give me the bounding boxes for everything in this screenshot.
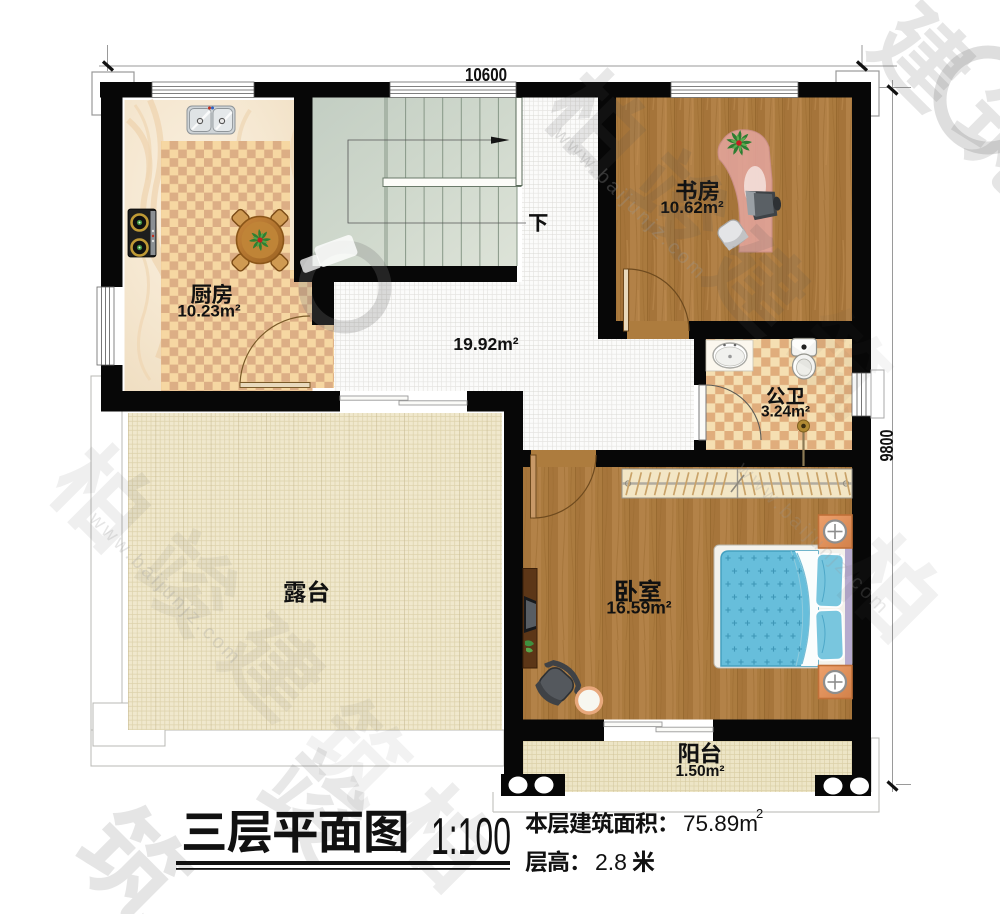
svg-text:16.59m²: 16.59m² xyxy=(606,598,671,618)
svg-text:2.8: 2.8 xyxy=(595,849,627,875)
svg-text:75.89m: 75.89m xyxy=(683,811,758,836)
svg-text:2: 2 xyxy=(756,806,763,821)
svg-text:1.50m²: 1.50m² xyxy=(675,763,724,780)
svg-text:1:100: 1:100 xyxy=(431,808,511,866)
svg-text:19.92m²: 19.92m² xyxy=(453,334,518,354)
svg-text:10.23m²: 10.23m² xyxy=(177,302,241,321)
svg-text:9800: 9800 xyxy=(876,430,897,462)
svg-text:3.24m²: 3.24m² xyxy=(761,404,810,421)
